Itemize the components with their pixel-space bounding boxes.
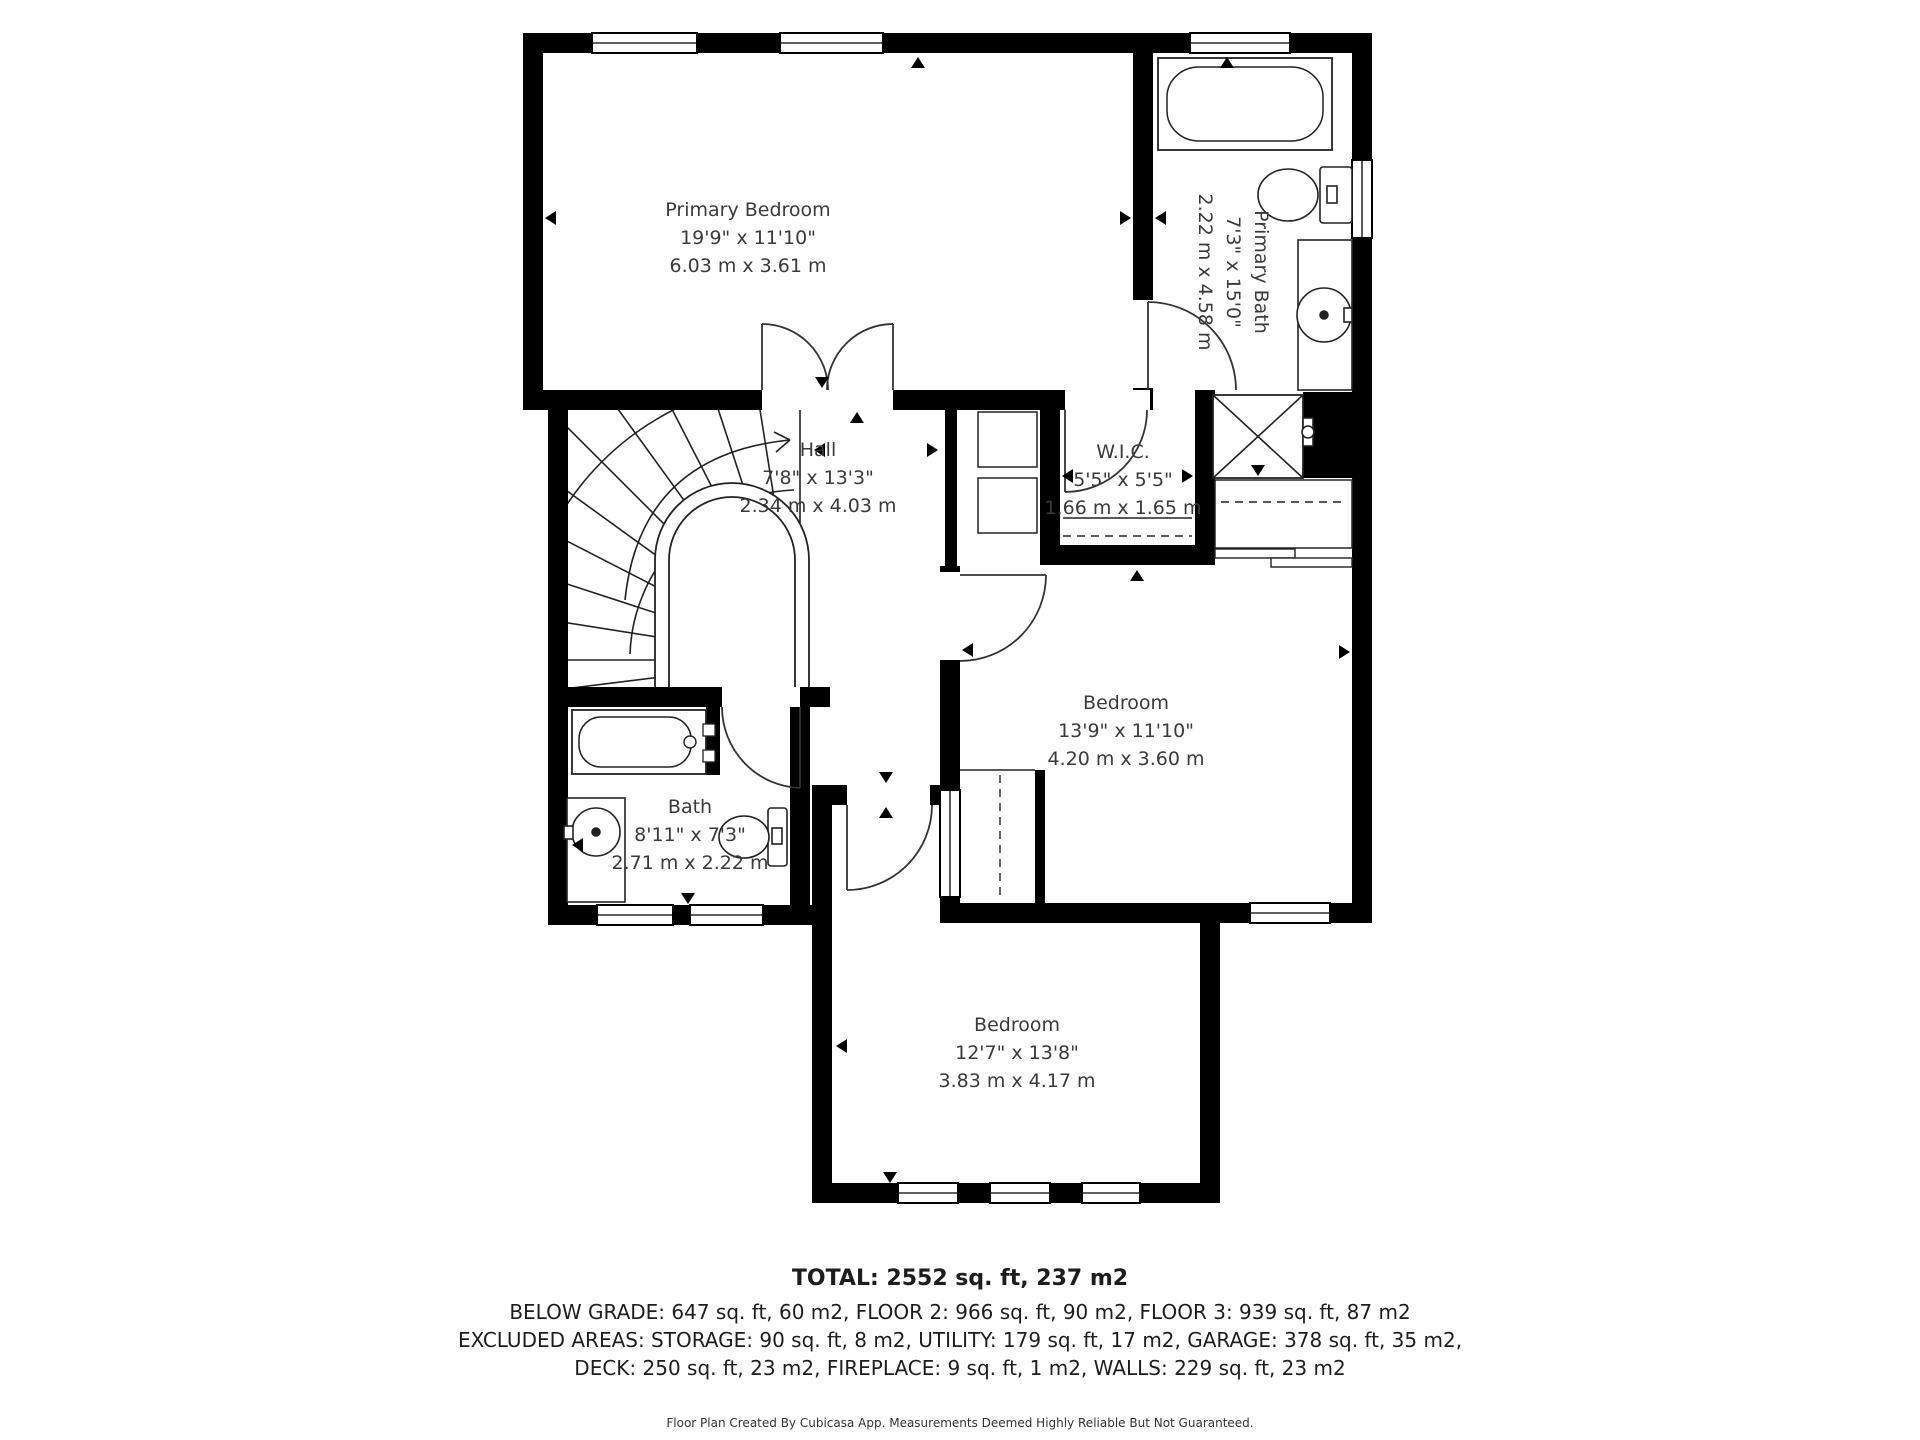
room-label-bedroom-bottom: Bedroom 12'7" x 13'8" 3.83 m x 4.17 m xyxy=(867,1011,1167,1095)
room-name: Bath xyxy=(540,793,840,821)
window xyxy=(1352,160,1372,238)
room-name: Hall xyxy=(668,436,968,464)
room-dim-imperial: 7'3" x 15'0" xyxy=(1219,152,1247,392)
closet-right-bedroom-top xyxy=(1215,480,1352,567)
window xyxy=(1250,903,1330,923)
room-dim-imperial: 7'8" x 13'3" xyxy=(668,464,968,492)
room-label-wic: W.I.C. 5'5" x 5'5" 1.66 m x 1.65 m xyxy=(1023,438,1223,522)
room-label-bath: Bath 8'11" x 7'3" 2.71 m x 2.22 m xyxy=(540,793,840,877)
room-dim-metric: 3.83 m x 4.17 m xyxy=(867,1067,1167,1095)
closet-right-bedroom-side xyxy=(960,770,1045,903)
window xyxy=(1082,1183,1140,1203)
bathtub-icon xyxy=(572,710,715,774)
room-dim-metric: 2.34 m x 4.03 m xyxy=(668,492,968,520)
room-dim-metric: 2.22 m x 4.58 m xyxy=(1191,152,1219,392)
floor-plan-drawing xyxy=(0,0,1920,1440)
room-name: Bedroom xyxy=(867,1011,1167,1039)
room-name: Primary Bedroom xyxy=(548,196,948,224)
bathtub-icon xyxy=(1158,58,1332,150)
room-dim-imperial: 13'9" x 11'10" xyxy=(976,717,1276,745)
room-dim-imperial: 19'9" x 11'10" xyxy=(548,224,948,252)
room-dim-metric: 1.66 m x 1.65 m xyxy=(1023,494,1223,522)
window xyxy=(990,1183,1050,1203)
door xyxy=(722,707,800,788)
double-door xyxy=(762,324,893,390)
sliding-door xyxy=(940,790,960,897)
window xyxy=(780,33,883,53)
room-dim-imperial: 5'5" x 5'5" xyxy=(1023,466,1223,494)
room-dim-imperial: 12'7" x 13'8" xyxy=(867,1039,1167,1067)
room-dim-metric: 4.20 m x 3.60 m xyxy=(976,745,1276,773)
room-label-hall: Hall 7'8" x 13'3" 2.34 m x 4.03 m xyxy=(668,436,968,520)
window xyxy=(898,1183,958,1203)
summary-floors: BELOW GRADE: 647 sq. ft, 60 m2, FLOOR 2:… xyxy=(0,1300,1920,1324)
room-name: Bedroom xyxy=(976,689,1276,717)
window xyxy=(1190,33,1290,53)
stair-railing-inner xyxy=(669,497,795,687)
room-label-bedroom-right: Bedroom 13'9" x 11'10" 4.20 m x 3.60 m xyxy=(976,689,1276,773)
room-dim-imperial: 8'11" x 7'3" xyxy=(540,821,840,849)
window xyxy=(690,905,763,925)
room-label-primary-bath: Primary Bath 7'3" x 15'0" 2.22 m x 4.58 … xyxy=(1191,152,1275,392)
room-dim-metric: 2.71 m x 2.22 m xyxy=(540,849,840,877)
room-label-primary-bedroom: Primary Bedroom 19'9" x 11'10" 6.03 m x … xyxy=(548,196,948,280)
window xyxy=(592,33,697,53)
room-name: Primary Bath xyxy=(1247,152,1275,392)
summary-total: TOTAL: 2552 sq. ft, 237 m2 xyxy=(0,1266,1920,1291)
summary-excluded-2: DECK: 250 sq. ft, 23 m2, FIREPLACE: 9 sq… xyxy=(0,1356,1920,1380)
room-dim-metric: 6.03 m x 3.61 m xyxy=(548,252,948,280)
floor-plan-page: Primary Bedroom 19'9" x 11'10" 6.03 m x … xyxy=(0,0,1920,1440)
disclaimer: Floor Plan Created By Cubicasa App. Meas… xyxy=(0,1416,1920,1430)
summary-excluded: EXCLUDED AREAS: STORAGE: 90 sq. ft, 8 m2… xyxy=(0,1328,1920,1352)
window xyxy=(597,905,673,925)
sink-icon xyxy=(1297,240,1352,390)
room-name: W.I.C. xyxy=(1023,438,1223,466)
